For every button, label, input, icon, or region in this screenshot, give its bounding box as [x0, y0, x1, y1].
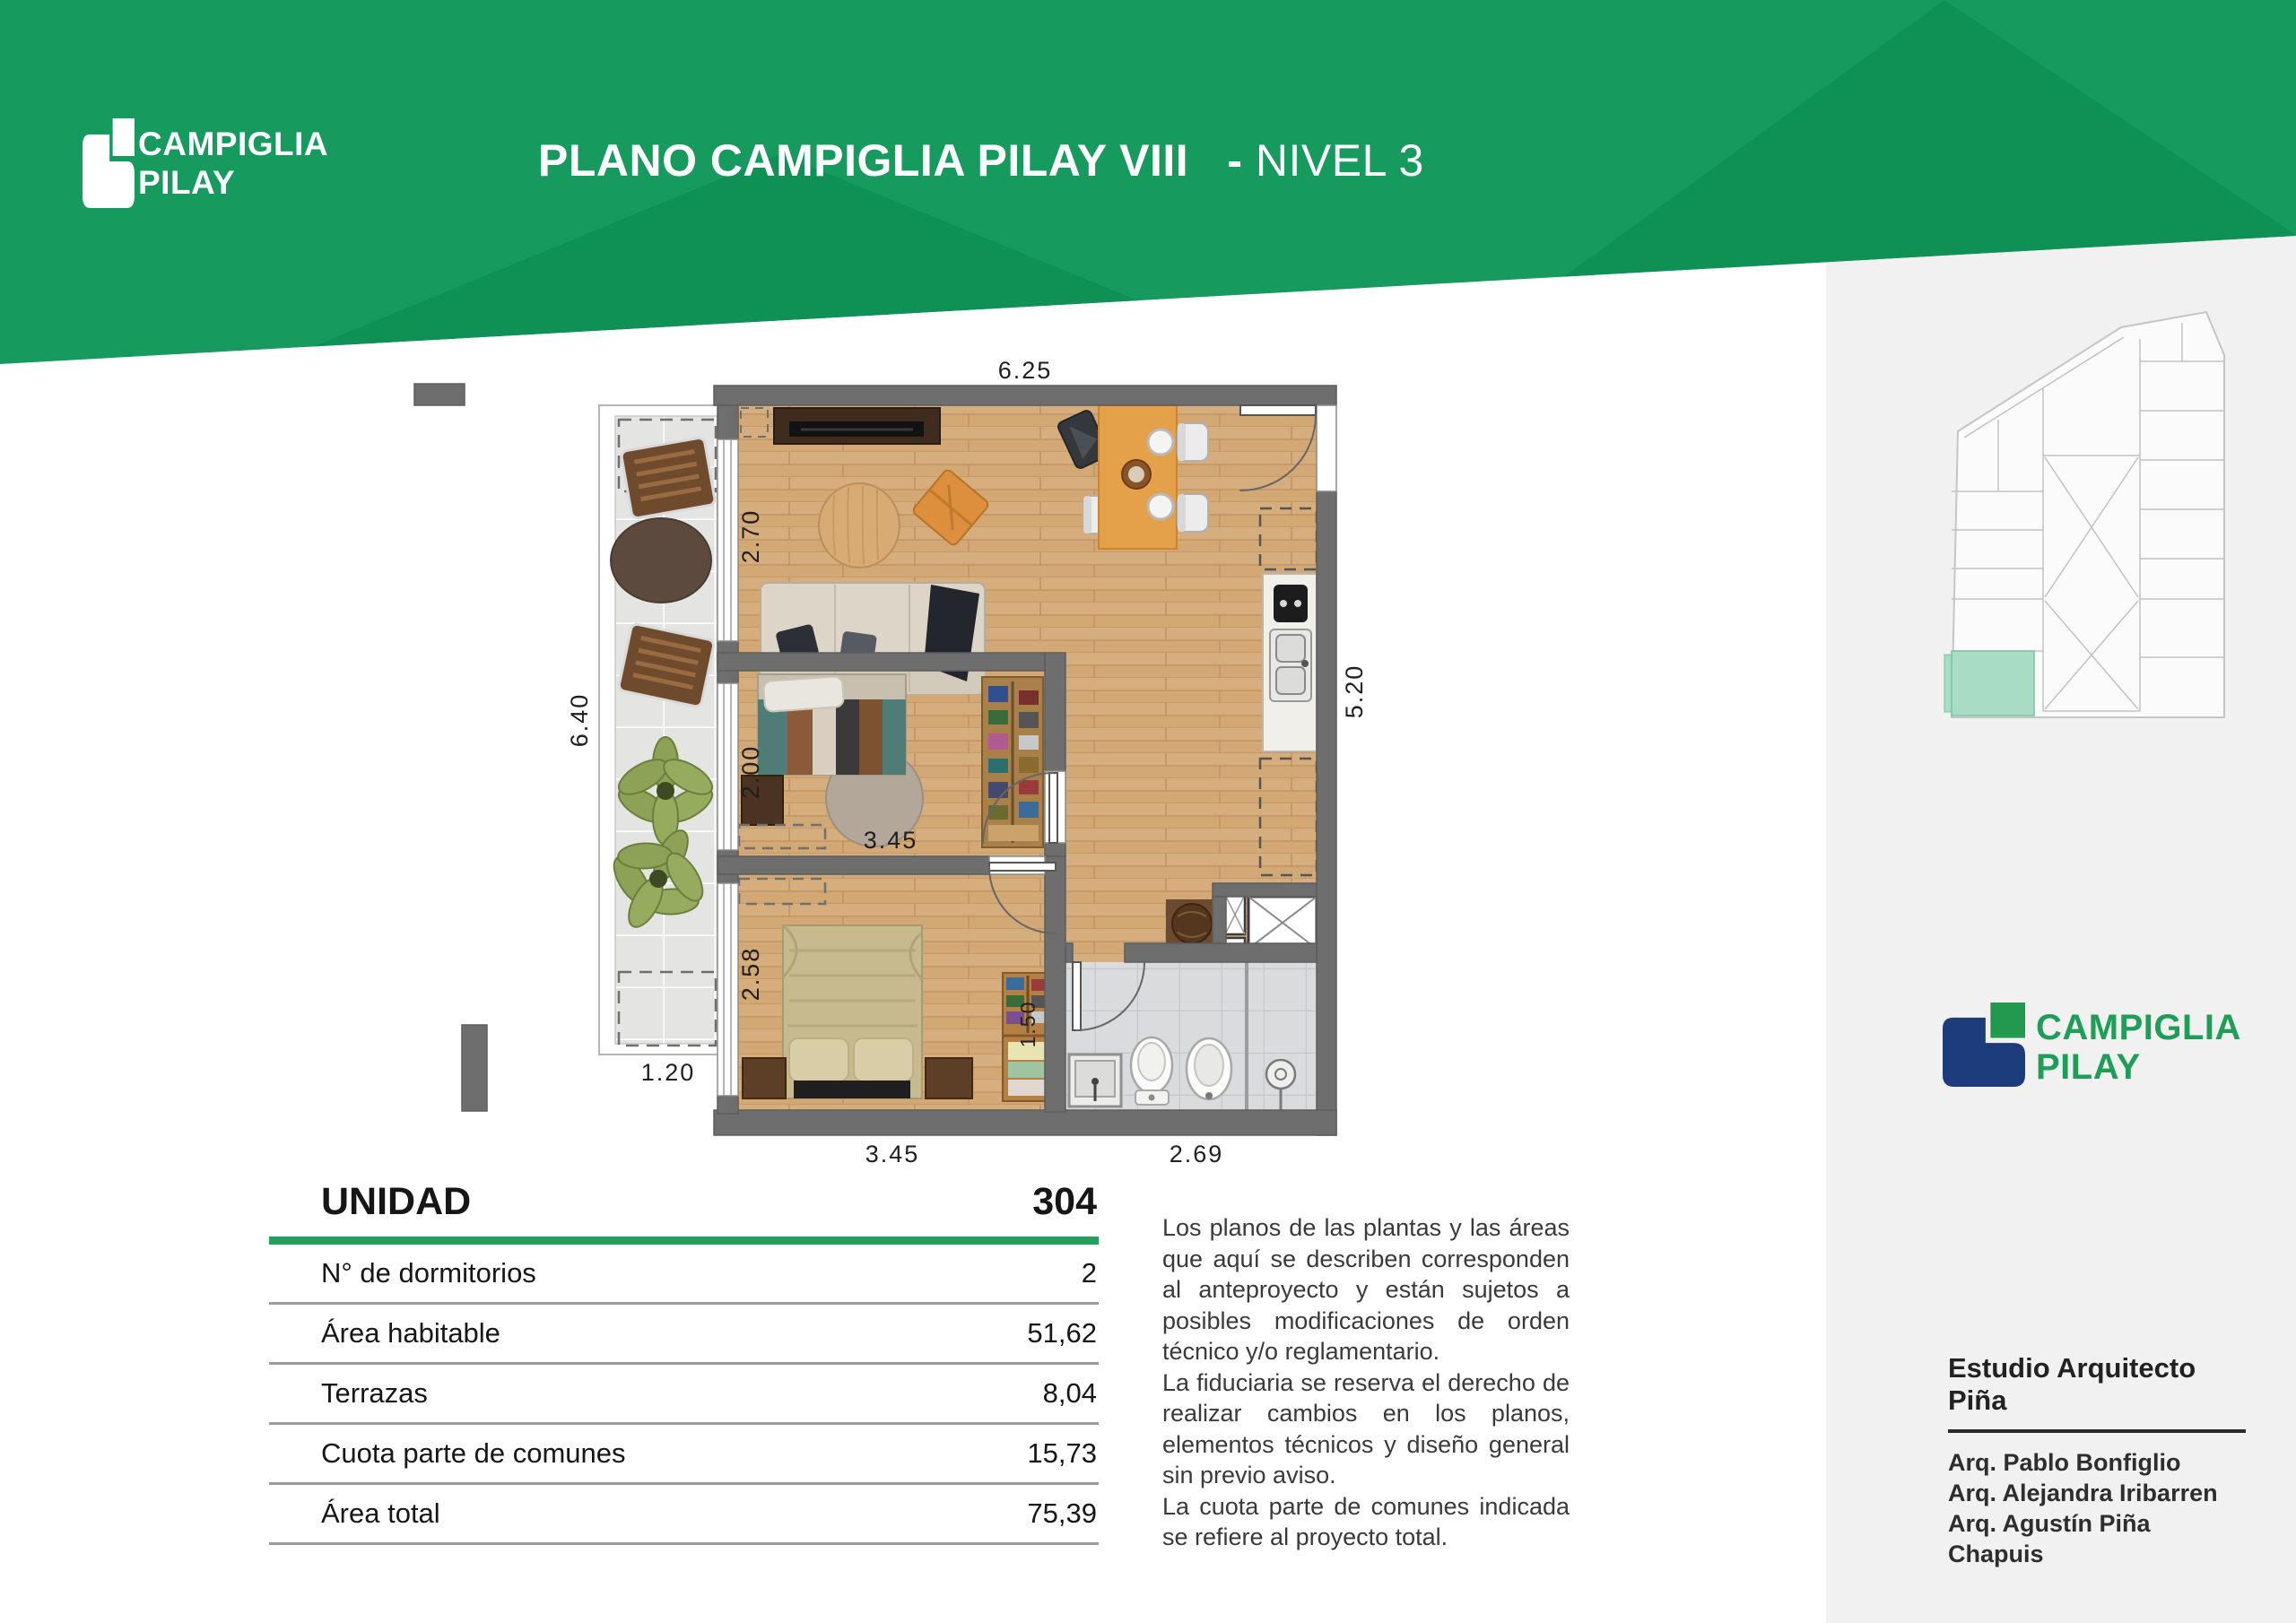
architect-name: Arq. Agustín Piña Chapuis	[1948, 1508, 2246, 1569]
unit-number: 304	[1032, 1180, 1097, 1224]
page-title-dash: -	[1227, 135, 1242, 186]
unit-table-header: UNIDAD 304	[269, 1180, 1099, 1245]
row-value: 75,39	[1027, 1497, 1099, 1530]
windows	[717, 439, 738, 1096]
sidebar-logo-line2: PILAY	[2036, 1047, 2241, 1087]
bidet	[1187, 1038, 1231, 1099]
page-title-level: NIVEL 3	[1256, 135, 1424, 186]
sidebar-logo-line1: CAMPIGLIA	[2036, 1008, 2241, 1047]
wall-hall-upper	[1045, 653, 1065, 771]
unit-data-table: UNIDAD 304 N° de dormitorios 2 Área habi…	[269, 1180, 1099, 1545]
page-title-main: PLANO CAMPIGLIA PILAY VIII	[538, 135, 1188, 186]
toilet	[1131, 1037, 1172, 1105]
disclaimer-text: Los planos de las plantas y las áreas qu…	[1162, 1212, 1570, 1553]
wall-shaft-top	[1213, 883, 1317, 897]
dim-bed1-h: 2.00	[737, 745, 764, 800]
table-row: N° de dormitorios 2	[269, 1245, 1099, 1305]
row-value: 15,73	[1027, 1437, 1099, 1470]
studio-architects: Arq. Pablo Bonfiglio Arq. Alejandra Irib…	[1948, 1447, 2246, 1569]
header-logo-line1: CAMPIGLIA	[138, 125, 328, 163]
studio-title: Estudio Arquitecto Piña	[1948, 1352, 2246, 1433]
kitchen-sink	[1270, 629, 1311, 701]
highlighted-unit	[1952, 651, 2034, 716]
vanity	[1069, 1055, 1121, 1107]
wall-shaft-left	[1213, 897, 1226, 943]
row-label: Terrazas	[321, 1377, 428, 1410]
header-logo-wordmark: CAMPIGLIA PILAY	[138, 125, 328, 202]
dim-top: 6.25	[998, 357, 1053, 384]
balcony-terrace	[587, 405, 730, 1055]
wall-stub-bottomleft	[462, 1025, 487, 1111]
row-label: N° de dormitorios	[321, 1257, 536, 1289]
bedroom1-bed	[758, 674, 906, 775]
architect-name: Arq. Pablo Bonfiglio	[1948, 1447, 2246, 1478]
campiglia-pilay-logo-icon	[83, 118, 135, 208]
row-value: 2	[1082, 1257, 1099, 1289]
row-label: Área habitable	[321, 1317, 500, 1350]
window-bedroom2	[717, 883, 738, 1096]
campiglia-pilay-logo-icon-color	[1943, 1002, 2025, 1087]
wall-living-bed1	[717, 653, 1045, 671]
laundry-basket	[1166, 899, 1218, 949]
balcony-table	[611, 518, 711, 603]
dim-living: 2.70	[737, 509, 764, 564]
bedroom1-wardrobe	[982, 677, 1043, 847]
dim-bed1-w: 3.45	[864, 827, 918, 854]
brochure-page: CAMPIGLIA PILAY PLANO CAMPIGLIA PILAY VI…	[0, 0, 2296, 1623]
disclaimer-p3: La cuota parte de comunes indicada se re…	[1162, 1491, 1570, 1553]
tv-cabinet	[774, 408, 940, 444]
balcony-chair-1	[621, 437, 716, 518]
table-row: Área total 75,39	[269, 1485, 1099, 1545]
bedroom1-pillow	[763, 676, 844, 712]
bedroom2-nightstand-right	[926, 1058, 972, 1098]
wall-bathroom-top	[1125, 943, 1317, 962]
bedroom2-bed	[783, 925, 922, 1098]
row-value: 8,04	[1043, 1377, 1099, 1410]
disclaimer-p2: La fiduciaria se reserva el derecho de r…	[1162, 1367, 1570, 1491]
window-living	[717, 439, 738, 641]
window-bedroom1	[717, 683, 738, 850]
table-row: Cuota parte de comunes 15,73	[269, 1425, 1099, 1485]
dim-left: 6.40	[566, 693, 593, 748]
dim-right: 5.20	[1341, 664, 1368, 719]
floor-plan: 6.25 2.70 6.40 2.00 3.45 2.58 1.50 1.20 …	[395, 352, 1417, 1175]
service-shaft	[1225, 895, 1317, 949]
coffee-table	[819, 483, 900, 568]
dim-balcony-w: 1.20	[641, 1059, 696, 1086]
bedroom2-footboard	[794, 1081, 910, 1098]
unit-table-title: UNIDAD	[321, 1180, 471, 1224]
wall-bed1-bed2	[717, 856, 989, 874]
row-value: 51,62	[1027, 1317, 1099, 1350]
dim-bed2-h: 2.58	[737, 947, 764, 1002]
highlighted-unit-balcony	[1944, 655, 1952, 712]
bedroom2-pillow-left	[789, 1038, 848, 1081]
header-logo-line2: PILAY	[138, 163, 328, 202]
disclaimer-p1: Los planos de las plantas y las áreas qu…	[1162, 1212, 1570, 1367]
page-title: PLANO CAMPIGLIA PILAY VIII - NIVEL 3	[538, 135, 1424, 187]
bedroom2-pillow-right	[854, 1038, 913, 1081]
architect-name: Arq. Alejandra Iribarren	[1948, 1478, 2246, 1508]
studio-block: Estudio Arquitecto Piña Arq. Pablo Bonfi…	[1948, 1352, 2246, 1569]
wall-bed2-right	[1045, 856, 1065, 1112]
wall-top	[714, 386, 1336, 405]
wall-bottom	[714, 1110, 1336, 1135]
dim-bottom-left: 3.45	[865, 1141, 920, 1167]
table-row: Área habitable 51,62	[269, 1305, 1099, 1365]
page-title-separator	[1202, 135, 1228, 186]
sidebar-logo-wordmark: CAMPIGLIA PILAY	[2036, 1008, 2241, 1087]
table-row: Terrazas 8,04	[269, 1365, 1099, 1425]
dim-bottom-right: 2.69	[1170, 1141, 1224, 1167]
wall-right	[1317, 491, 1336, 1135]
cooktop	[1274, 585, 1308, 622]
key-site-plan	[1909, 303, 2263, 769]
row-label: Cuota parte de comunes	[321, 1437, 626, 1470]
wall-stub-topleft	[414, 384, 465, 405]
dim-closet: 1.50	[1016, 1001, 1039, 1048]
bedroom2-nightstand-left	[743, 1058, 786, 1098]
row-label: Área total	[321, 1497, 440, 1530]
